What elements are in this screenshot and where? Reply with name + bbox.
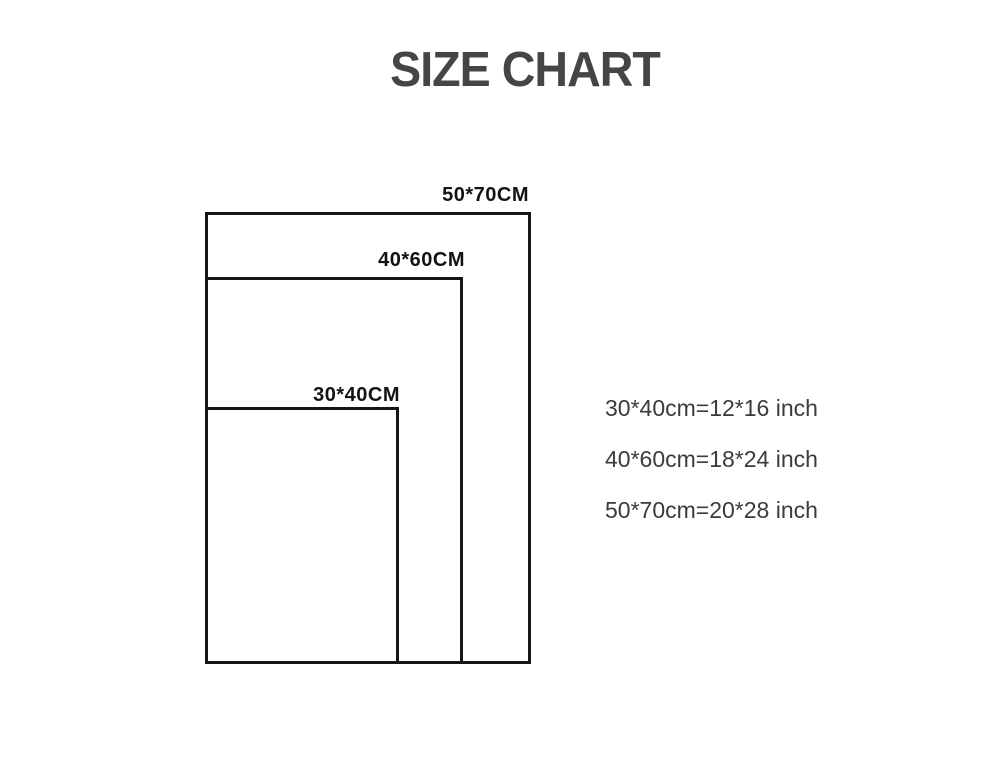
size-label-30x40cm: 30*40CM bbox=[220, 384, 400, 407]
size-label-50x70cm: 50*70CM bbox=[349, 184, 529, 207]
conversion-item-50x70: 50*70cm=20*28 inch bbox=[605, 499, 818, 522]
page-title: SIZE CHART bbox=[340, 42, 711, 98]
size-chart-canvas: SIZE CHART 50*70CM 40*60CM 30*40CM 30*40… bbox=[0, 0, 990, 772]
conversion-item-40x60: 40*60cm=18*24 inch bbox=[605, 448, 818, 471]
size-label-40x60cm: 40*60CM bbox=[285, 249, 465, 272]
conversion-item-30x40: 30*40cm=12*16 inch bbox=[605, 397, 818, 420]
conversion-list: 30*40cm=12*16 inch 40*60cm=18*24 inch 50… bbox=[605, 397, 818, 522]
size-rect-30x40cm bbox=[205, 407, 399, 664]
